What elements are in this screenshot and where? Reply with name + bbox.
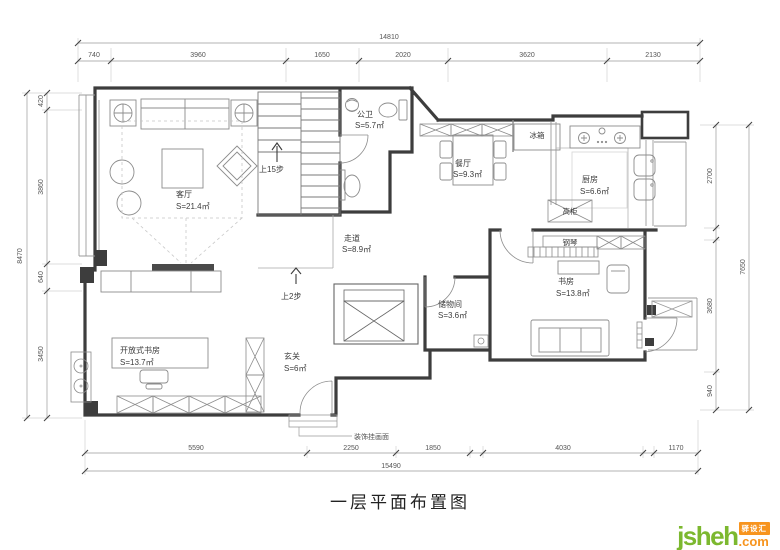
dim-bottom-seg: 1170 [668,445,683,452]
room-area-entry: S=6㎡ [284,364,306,373]
study-balcony-door [645,318,677,352]
guest-bath: 公卫 S=5.7㎡ [340,99,407,201]
bath-door [340,135,368,163]
dim-top-total: 14810 [379,34,399,41]
storage-outlet-box [474,335,488,347]
dimensions-left: 8470 420 3860 640 3450 [17,90,50,421]
study: 钢琴 书房 S=13.8㎡ [528,236,677,356]
room-area-corridor: S=8.9㎡ [342,245,371,254]
ceiling-light-icon [231,100,257,126]
kitchen-door [500,230,533,263]
room-label-bath: 公卫 [357,110,373,119]
dim-left-seg: 640 [38,271,45,283]
coffee-table [162,149,203,188]
room-area-storage: S=3.6㎡ [438,311,467,320]
dim-top-seg: 1650 [314,52,330,59]
dim-bottom-total: 15490 [381,463,401,470]
washbasin-icon [340,170,360,200]
dim-right-seg: 940 [707,385,714,397]
dining-cabinets [420,124,513,136]
decor-wall-annotation: 装饰挂画面 [299,427,389,441]
tv-cabinet [101,271,221,292]
kitchen-sink-icon [634,155,655,200]
room-label-entry: 玄关 [284,351,300,361]
armchair [117,191,141,215]
dim-bottom-seg: 2250 [343,445,359,452]
stove-icon [570,126,640,148]
dim-right-total: 7650 [740,259,747,275]
dim-bottom-seg: 5590 [188,445,204,452]
room-area-study: S=13.8㎡ [556,289,590,298]
room-area-bath: S=5.7㎡ [355,121,384,130]
dim-top-seg: 2020 [395,52,411,59]
room-label-living: 客厅 [176,189,192,199]
stairs-up-arrow [272,143,282,162]
window-kitchen-right [646,140,686,226]
living-room: 客厅 S=21.4㎡ [101,99,257,292]
drawing-title: 一层平面布置图 [330,493,470,512]
wall-corner-block [642,112,688,138]
tv-projection-lines [132,218,242,263]
storage-room: 储物间 S=3.6㎡ [425,277,488,347]
bottom-cabinets [117,396,261,413]
dim-right-seg: 2700 [707,168,714,184]
room-label-open-study: 开放式书房 [120,345,160,355]
dining-room: 冰箱 餐厅 S=9.3㎡ [420,120,560,185]
study-sofa [531,320,609,356]
stairs-up-label: 上15步 [259,165,284,174]
dim-left-seg: 3450 [38,346,45,362]
corridor: 上2步 走道 S=8.9㎡ [258,215,371,301]
dim-top-seg: 740 [88,52,100,59]
tall-cabinet-label: 高柜 [563,206,578,216]
floor-plan-canvas: 14810 740 3960 1650 2020 3620 2130 8470 … [0,0,780,550]
room-area-kitchen: S=6.6㎡ [580,187,609,196]
study-cabinets [597,236,645,249]
logo-tld: .com [739,535,769,548]
desk-chair [140,370,168,389]
dim-bottom-seg: 4030 [555,445,571,452]
sofa [141,99,229,129]
dim-top-seg: 3960 [190,52,206,59]
ceiling-light-icon [110,100,136,126]
stairs [258,92,340,215]
dim-left-seg: 420 [38,95,45,107]
dimensions-bottom: 5590 2250 1850 4030 1170 15490 [82,445,701,474]
fridge-label: 冰箱 [530,130,545,140]
watermark-logo: jsheh 驿设汇 .com [677,522,770,548]
room-area-dining: S=9.3㎡ [453,170,482,179]
room-area-open-study: S=13.7㎡ [120,358,154,367]
dim-bottom-seg: 1850 [425,445,441,452]
logo-brand: jsheh [677,525,737,548]
study-chaise [607,265,629,293]
dim-right-seg: 3680 [707,298,714,314]
piano-label: 钢琴 [563,237,578,247]
room-area-living: S=21.4㎡ [176,202,210,211]
room-label-corridor: 走道 [344,233,360,243]
corridor-step-line [258,215,333,268]
kitchen-partition [551,122,556,205]
room-label-kitchen: 厨房 [582,174,598,184]
planter-icons [71,352,91,402]
dim-left-total: 8470 [17,248,24,264]
walls [85,88,688,415]
open-study: 开放式书房 S=13.7㎡ [71,338,264,413]
study-table [558,261,599,274]
entry-porch [289,415,337,427]
entry-door [300,381,332,413]
dim-top-seg: 2130 [645,52,661,59]
decor-wall-label: 装饰挂画面 [354,432,389,441]
steps-up-label: 上2步 [281,292,301,301]
dimensions-top: 14810 740 3960 1650 2020 3620 2130 [75,34,703,64]
floor-plan-drawing: 14810 740 3960 1650 2020 3620 2130 8470 … [0,0,780,550]
dim-left-seg: 3860 [38,179,45,195]
display-cabinet [334,284,418,344]
room-label-study: 书房 [558,276,574,286]
radiator [637,322,642,348]
side-table-diamond [217,146,257,186]
dim-top-seg: 3620 [519,52,535,59]
wall-piers [80,250,656,414]
toilet-icon [379,100,407,120]
tv [152,264,214,271]
room-label-dining: 餐厅 [455,159,471,168]
steps-up-arrow [291,268,301,284]
room-label-storage: 储物间 [438,299,462,309]
dimensions-right: 2700 3680 940 7650 [707,122,752,413]
